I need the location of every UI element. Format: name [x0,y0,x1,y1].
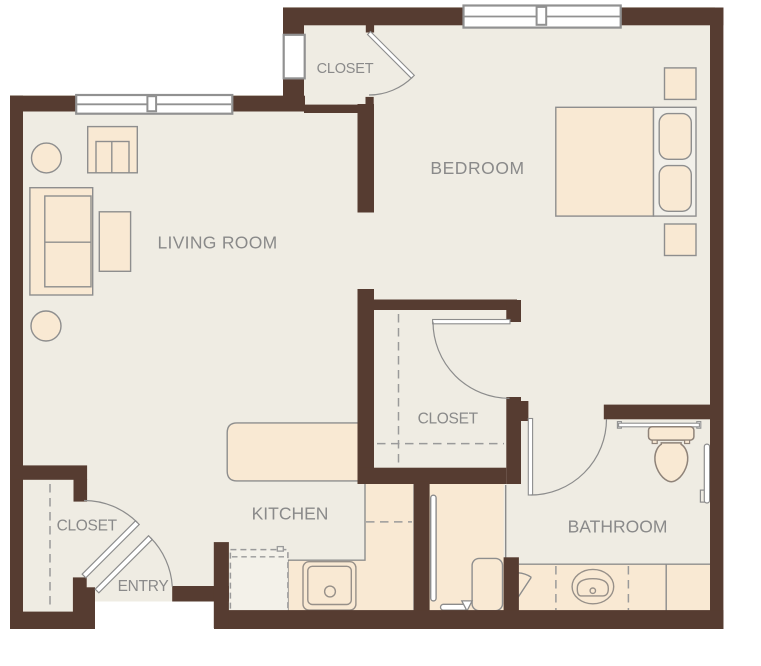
svg-text:BEDROOM: BEDROOM [430,158,524,178]
svg-text:KITCHEN: KITCHEN [252,504,329,524]
svg-text:ENTRY: ENTRY [118,578,169,595]
svg-text:CLOSET: CLOSET [418,411,479,428]
svg-text:CLOSET: CLOSET [317,61,374,77]
svg-text:CLOSET: CLOSET [57,518,118,535]
svg-text:LIVING ROOM: LIVING ROOM [158,233,278,253]
svg-text:BATHROOM: BATHROOM [568,517,668,537]
